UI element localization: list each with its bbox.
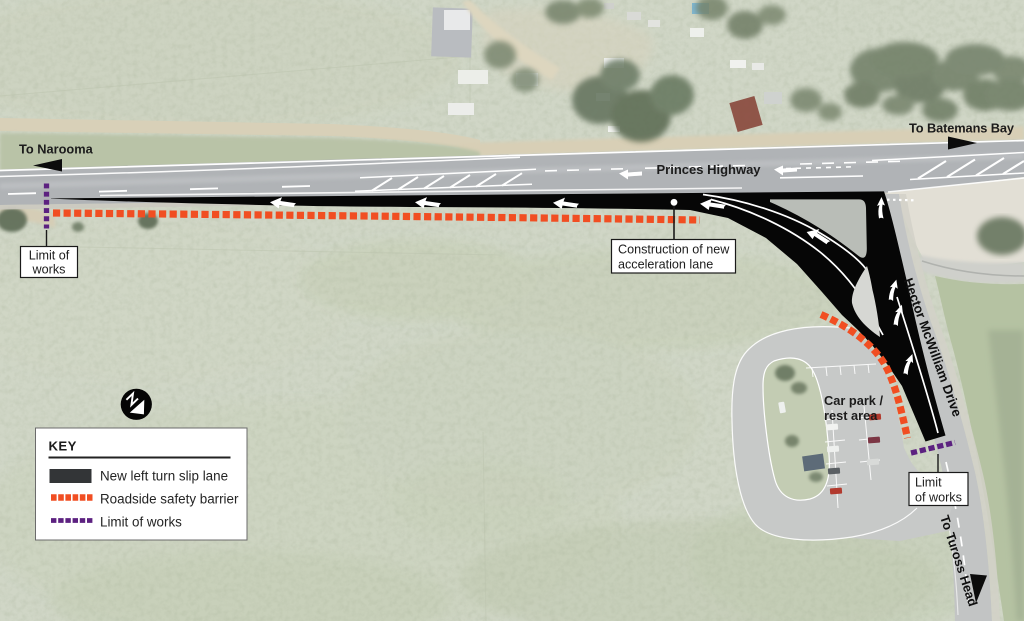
svg-text:Limit of: Limit of bbox=[29, 249, 70, 263]
svg-text:New left turn slip lane: New left turn slip lane bbox=[100, 469, 228, 484]
svg-text:of works: of works bbox=[915, 491, 962, 505]
svg-text:Construction of new: Construction of new bbox=[618, 243, 730, 257]
svg-text:To Batemans Bay: To Batemans Bay bbox=[909, 121, 1015, 136]
svg-text:Car park /: Car park / bbox=[824, 393, 883, 408]
svg-text:works: works bbox=[32, 263, 66, 277]
svg-text:Limit: Limit bbox=[915, 476, 942, 490]
svg-text:Limit of works: Limit of works bbox=[100, 515, 182, 530]
svg-text:Princes Highway: Princes Highway bbox=[657, 162, 762, 177]
svg-text:rest area: rest area bbox=[824, 408, 878, 423]
svg-text:To Narooma: To Narooma bbox=[19, 142, 94, 157]
svg-text:KEY: KEY bbox=[49, 439, 77, 454]
svg-text:acceleration lane: acceleration lane bbox=[618, 258, 713, 272]
svg-text:Roadside safety barrier: Roadside safety barrier bbox=[100, 492, 239, 507]
